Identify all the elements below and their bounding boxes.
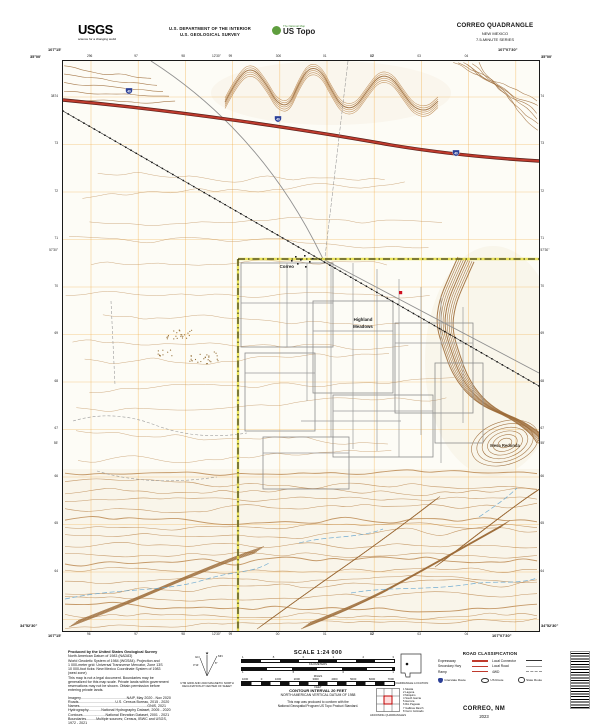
railroad-tie — [392, 301, 394, 303]
scale-tick-number: 3 — [392, 656, 394, 659]
railroad-tie — [120, 143, 122, 145]
sand-dot — [208, 357, 209, 358]
railroad-tie — [423, 319, 425, 321]
sand-dot — [200, 354, 201, 355]
building — [304, 255, 306, 257]
edge-tick-label: 70 — [541, 284, 545, 288]
railroad-tie — [418, 316, 420, 318]
railroad-tie — [182, 180, 184, 182]
railroad-tie — [78, 119, 80, 121]
corner-top-left-lat: 35°00' — [30, 54, 41, 59]
local-road-line-swatch — [526, 666, 542, 667]
railroad-tie — [224, 204, 226, 206]
scale-tick-number: 0 — [303, 656, 305, 659]
railroad-tie — [439, 328, 441, 330]
railroad-tie — [109, 137, 111, 139]
edge-tick-label: 67 — [28, 426, 58, 430]
railroad-tie — [104, 134, 106, 136]
railroad-tie — [491, 358, 493, 360]
railroad-tie — [219, 201, 221, 203]
railroad-tie — [481, 352, 483, 354]
department-heading: U.S. DEPARTMENT OF THE INTERIOR U.S. GEO… — [158, 26, 262, 37]
railroad-tie — [261, 225, 263, 227]
sand-dot — [189, 335, 190, 336]
edge-tick-label: 72 — [28, 189, 58, 193]
edge-tick-label: 68 — [28, 379, 58, 383]
edge-tick-label: 69 — [541, 331, 545, 335]
scale-tick-number: 6000 — [369, 678, 375, 681]
sand-dot — [187, 333, 188, 334]
edge-tick-label: 10' — [370, 54, 374, 58]
sand-dot — [208, 355, 209, 356]
edge-tick-label: 74 — [541, 94, 545, 98]
railroad-tie — [146, 159, 148, 161]
edge-tick-label: 296 — [87, 54, 92, 58]
sand-dot — [192, 360, 193, 361]
grid-north-label: GN — [195, 655, 200, 659]
ramp-line-swatch — [472, 671, 488, 672]
sand-dot — [158, 353, 159, 354]
fourwd-line-swatch — [526, 671, 542, 672]
railroad-tie — [428, 322, 430, 324]
railroad-tie — [256, 222, 258, 224]
sand-dot — [162, 350, 163, 351]
railroad-tie — [282, 237, 284, 239]
edge-tick-label: 01 — [323, 54, 327, 58]
usgs-topo-sheet: USGS science for a changing world U.S. D… — [0, 0, 600, 725]
scale-tick-number: 0 — [261, 678, 263, 681]
usgs-logo-text: USGS — [78, 24, 116, 36]
legend-ramp-label: Ramp — [438, 670, 447, 674]
railroad-tie — [188, 183, 190, 185]
railroad-tie — [444, 331, 446, 333]
scale-tick-number: 1000 — [275, 678, 281, 681]
imprint-title: CORREO, NM — [444, 706, 524, 712]
legend-4wd-label: 4WD — [492, 670, 499, 674]
road-legend-title: ROAD CLASSIFICATION — [438, 651, 542, 656]
building — [309, 261, 311, 263]
interstate-shield-number-1: 40 — [127, 90, 131, 94]
edge-tick-label: 55' — [28, 441, 58, 445]
corner-top-right-lon: 107°07'30" — [498, 47, 517, 52]
scale-tick-number: 1 — [242, 671, 244, 674]
railroad-tie — [287, 240, 289, 242]
railroad-tie — [73, 116, 75, 118]
barcode — [570, 651, 590, 709]
topo-map: Correo Highland Meadows Mesa Redonda 40 … — [63, 61, 539, 631]
railroad-tie — [460, 340, 462, 342]
sand-dot — [158, 350, 159, 351]
sand-dot — [191, 330, 192, 331]
legend-local-road-label: Local Road — [492, 664, 509, 668]
sand-dot — [167, 338, 168, 339]
railroad-tie — [303, 249, 305, 251]
magnetic-north-value: 8° — [215, 661, 217, 665]
edge-tick-label: 72 — [541, 189, 545, 193]
building — [312, 258, 314, 260]
railroad-tie — [88, 125, 90, 127]
scale-tick-number: 2 — [362, 656, 364, 659]
ustopo-logo: The National Map US Topo — [272, 25, 315, 36]
railroad-tie — [292, 243, 294, 245]
railroad-tie — [266, 228, 268, 230]
edge-tick-label: 66 — [28, 474, 58, 478]
railroad-tie — [475, 349, 477, 351]
railroad-tie — [324, 261, 326, 263]
dept-line1: U.S. DEPARTMENT OF THE INTERIOR — [158, 26, 262, 32]
edge-tick-label: 04 — [465, 54, 469, 58]
railroad-tie — [250, 219, 252, 221]
adjoining-quadrangle-grid — [376, 688, 400, 712]
sand-dot — [203, 358, 204, 359]
road-classification-legend: ROAD CLASSIFICATION Expressway Local Con… — [438, 651, 542, 683]
quadrangle-heading: CORREO QUADRANGLE NEW MEXICO 7.5-MINUTE … — [420, 22, 570, 42]
scale-tick-number: 3000 — [313, 678, 319, 681]
railroad-tie — [308, 252, 310, 254]
sand-dot — [180, 336, 181, 337]
railroad-tie — [167, 171, 169, 173]
sand-dot — [171, 355, 172, 356]
edge-tick-label: 64 — [541, 569, 545, 573]
legend-local-connector-label: Local Connector — [492, 659, 516, 663]
edge-tick-label: 12'30" — [212, 54, 221, 58]
edge-tick-label: 71 — [541, 236, 545, 240]
corner-top-right-lat: 35°00' — [541, 54, 552, 59]
data-credit-line: Hydrography.............National Hydrogr… — [68, 708, 184, 712]
railroad-tie — [177, 177, 179, 179]
edge-tick-label: 70 — [28, 284, 58, 288]
sand-dot — [195, 359, 196, 360]
scale-tick-number: 5000 — [350, 678, 356, 681]
quad-title: CORREO QUADRANGLE — [420, 22, 570, 29]
adjoining-quad-name: 8 Cerro Colorado — [403, 710, 437, 713]
scale-tick-number: 4000 — [331, 678, 337, 681]
quad-location-dot — [406, 663, 409, 666]
corner-bottom-left-lon: 107°15' — [48, 633, 61, 638]
railroad-tie — [345, 273, 347, 275]
sand-dot — [159, 355, 160, 356]
interstate-shield-icon — [438, 678, 443, 683]
scale-tick-number: 1000 — [242, 678, 248, 681]
sand-dot — [173, 338, 174, 339]
railroad-tie — [67, 113, 69, 115]
railroad-tie — [313, 255, 315, 257]
secondary-line-swatch — [472, 666, 488, 667]
railroad-tie — [371, 288, 373, 290]
railroad-tie — [397, 304, 399, 306]
edge-tick-label: 55' — [541, 441, 545, 445]
railroad-tie — [193, 186, 195, 188]
sand-dot — [166, 337, 167, 338]
sand-dot — [168, 335, 169, 336]
dept-line2: U.S. GEOLOGICAL SURVEY — [158, 32, 262, 38]
railroad-tie — [407, 310, 409, 312]
true-north-star-icon: ★ — [205, 651, 209, 656]
railroad-tie — [235, 210, 237, 212]
edge-tick-label: 57'30" — [28, 248, 58, 252]
adjoining-caption: ADJOINING QUADRANGLES — [370, 714, 406, 717]
railroad-tie — [334, 267, 336, 269]
scale-tick-number: 1 — [333, 656, 335, 659]
edge-tick-label: 03 — [417, 54, 421, 58]
quad-series: 7.5-MINUTE SERIES — [420, 37, 570, 42]
legend-expressway-label: Expressway — [438, 659, 456, 663]
sand-dot — [217, 355, 218, 356]
railroad-tie — [203, 192, 205, 194]
sand-dot — [206, 354, 207, 355]
scale-tick-number: 0 — [343, 671, 345, 674]
adjoining-quad-names: 1 Mesita2 Laguna3 Moquino4 South Garcia5… — [403, 688, 437, 713]
railroad-tie — [99, 131, 101, 133]
local-connector-line-swatch — [526, 660, 542, 661]
railroad-tie — [230, 207, 232, 209]
sand-dot — [177, 338, 178, 339]
railroad-tie — [329, 264, 331, 266]
railroad-tie — [277, 234, 279, 236]
sand-dot — [208, 359, 209, 360]
scale-tick-number: 1 — [392, 671, 394, 674]
railroad-tie — [496, 361, 498, 363]
subdivision-label-line2: Meadows — [353, 324, 373, 329]
map-frame: Correo Highland Meadows Mesa Redonda 40 … — [62, 60, 540, 632]
railroad-tie — [486, 355, 488, 357]
railroad-tie — [209, 195, 211, 197]
red-building — [399, 291, 402, 294]
railroad-tie — [130, 149, 132, 151]
center-quad-cell — [384, 696, 392, 704]
edge-tick-label: 98 — [181, 54, 185, 58]
usgs-logo: USGS science for a changing world — [78, 24, 116, 41]
scale-tick-number: 2000 — [294, 678, 300, 681]
railroad-tie — [376, 291, 378, 293]
grid-north-value: 0°14' — [193, 663, 199, 667]
sand-dot — [179, 329, 180, 330]
state-route-circle-icon — [518, 677, 524, 683]
scale-tick-number: 1 — [242, 656, 244, 659]
sand-dot — [180, 334, 181, 335]
railroad-tie — [507, 367, 509, 369]
railroad-tie — [156, 165, 158, 167]
railroad-tie — [512, 370, 514, 372]
corner-bottom-left-lat: 34°52'30" — [20, 623, 37, 628]
sand-dot — [217, 360, 218, 361]
railroad-tie — [533, 382, 535, 384]
ustopo-wordmark: US Topo — [283, 28, 315, 36]
corner-top-left-lon: 107°15' — [48, 47, 61, 52]
railroad-tie — [350, 276, 352, 278]
settlement-label: Correo — [280, 264, 295, 269]
interstate-shield-number-2: 40 — [276, 118, 280, 122]
railroad-tie — [386, 298, 388, 300]
corner-bottom-right-lon: 107°07'30" — [492, 633, 511, 638]
edge-tick-label: 3874 — [28, 94, 58, 98]
edge-tick-label: 67 — [541, 426, 545, 430]
edge-tick-label: 69 — [28, 331, 58, 335]
corner-bottom-right-lat: 34°52'30" — [541, 623, 558, 628]
us-route-oval-icon — [481, 678, 489, 684]
sand-dot — [162, 354, 163, 355]
railroad-tie — [135, 152, 137, 154]
edge-tick-label: 99 — [229, 54, 233, 58]
railroad-tie — [465, 343, 467, 345]
railroad-tie — [271, 231, 273, 233]
edge-tick-label: 68 — [541, 379, 545, 383]
sand-dot — [207, 363, 208, 364]
railroad-tie — [94, 128, 96, 130]
map-imprint: CORREO, NM 2023 — [444, 706, 524, 719]
mesa-label: Mesa Redonda — [490, 443, 520, 448]
sand-dot — [205, 356, 206, 357]
railroad-tie — [298, 246, 300, 248]
legend-us-route-label: US Route — [490, 678, 503, 682]
railroad-tie — [366, 285, 368, 287]
declination-diagram: ★ GN MN 0°14' 8° — [184, 650, 230, 680]
sand-dot — [217, 359, 218, 360]
edge-tick-label: 73 — [28, 141, 58, 145]
edge-tick-label: 57'30" — [541, 248, 550, 252]
magnetic-north-label: MN — [218, 654, 223, 658]
sand-dot — [191, 359, 192, 360]
railroad-tie — [502, 364, 504, 366]
interstate-shield-number-3: 40 — [454, 152, 458, 156]
legend-interstate-label: Interstate Route — [445, 678, 466, 682]
building — [295, 256, 297, 258]
sand-dot — [189, 361, 190, 362]
usgs-logo-tagline: science for a changing world — [78, 37, 116, 41]
sand-dot — [182, 337, 183, 338]
sand-dot — [184, 334, 185, 335]
sand-dot — [210, 361, 211, 362]
sand-dot — [197, 362, 198, 363]
railroad-tie — [151, 162, 153, 164]
sand-dot — [215, 353, 216, 354]
railroad-tie — [454, 337, 456, 339]
railroad-tie — [198, 189, 200, 191]
sand-dot — [167, 336, 168, 337]
railroad-tie — [162, 168, 164, 170]
railroad-tie — [355, 279, 357, 281]
railroad-tie — [402, 307, 404, 309]
sand-dot — [175, 336, 176, 337]
railroad-tie — [413, 313, 415, 315]
sand-dot — [176, 332, 177, 333]
railroad-tie — [449, 334, 451, 336]
railroad-tie — [141, 155, 143, 157]
expressway-line-swatch — [472, 660, 488, 662]
edge-tick-label: 65 — [541, 521, 545, 525]
edge-tick-label: 02 — [370, 54, 374, 58]
ustopo-globe-icon — [272, 26, 281, 35]
railroad-tie — [114, 140, 116, 142]
edge-tick-label: 71 — [28, 236, 58, 240]
railroad-tie — [522, 376, 524, 378]
building — [297, 263, 299, 265]
sand-dot — [209, 360, 210, 361]
sand-dot — [186, 338, 187, 339]
edge-tick-label: 97 — [134, 54, 138, 58]
railroad-tie — [470, 346, 472, 348]
quad-state: NEW MEXICO — [420, 31, 570, 36]
scale-tick-number: .5 — [272, 656, 274, 659]
edge-tick-label: 300 — [276, 54, 281, 58]
imprint-year: 2023 — [444, 714, 524, 719]
sand-dot — [189, 331, 190, 332]
railroad-tie — [434, 325, 436, 327]
sand-dot — [170, 350, 171, 351]
locator-caption: QUADRANGLE LOCATION — [386, 681, 436, 685]
railroad-tie — [381, 294, 383, 296]
canyon-tint — [63, 469, 539, 631]
scale-block: SCALE 1:24 000 1.50123 KILOMETERS 1.501 … — [236, 650, 400, 689]
sand-dot — [173, 330, 174, 331]
subdivision-label-line1: Highland — [354, 317, 373, 322]
sand-dot — [167, 352, 168, 353]
railroad-tie — [240, 213, 242, 215]
railroad-tie — [360, 282, 362, 284]
railroad-tie — [83, 122, 85, 124]
scale-tick-number: .5 — [292, 671, 294, 674]
edge-tick-label: 64 — [28, 569, 58, 573]
edge-tick-label: 66 — [541, 474, 545, 478]
railroad-tie — [528, 379, 530, 381]
sand-dot — [214, 351, 215, 352]
railroad-tie — [214, 198, 216, 200]
legend-state-route-label: State Route — [526, 678, 542, 682]
railroad-tie — [318, 258, 320, 260]
railroad-tie — [517, 373, 519, 375]
sand-dot — [191, 355, 192, 356]
railroad-tie — [339, 270, 341, 272]
legend-secondary-label: Secondary Hwy — [438, 664, 461, 668]
state-locator-map — [398, 652, 424, 679]
railroad-tie — [125, 146, 127, 148]
edge-tick-label: 65 — [28, 521, 58, 525]
sand-dot — [182, 336, 183, 337]
building — [291, 260, 293, 262]
edge-tick-label: 73 — [541, 141, 545, 145]
sand-dot — [200, 361, 201, 362]
building — [300, 259, 302, 261]
building — [305, 266, 307, 268]
railroad-tie — [245, 216, 247, 218]
railroad-tie — [172, 174, 174, 176]
